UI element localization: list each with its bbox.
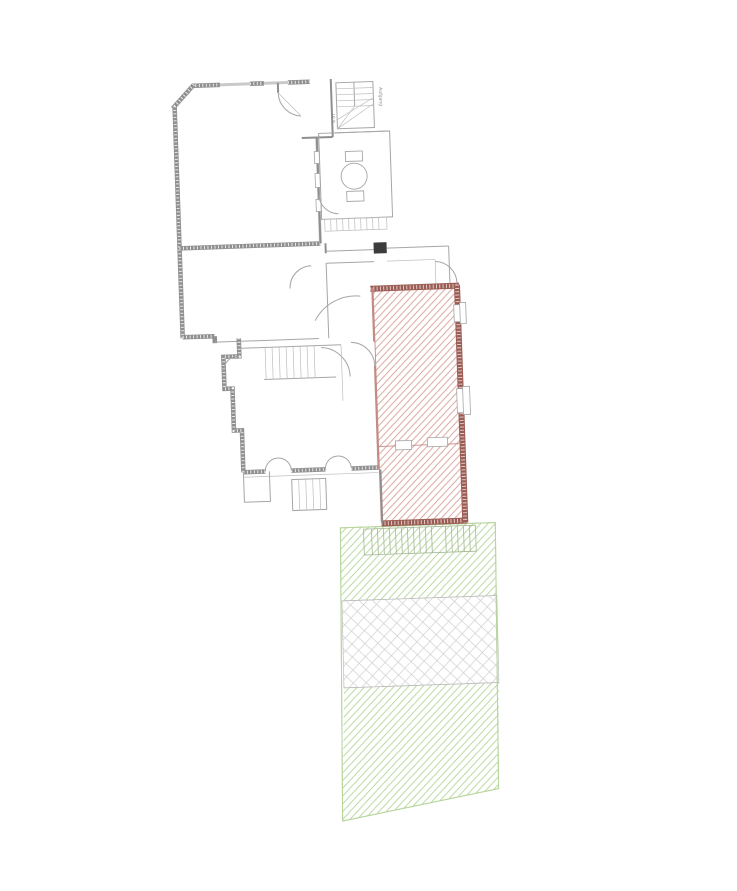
garden-band-top — [339, 523, 497, 601]
window-outer — [460, 302, 467, 323]
chair — [345, 151, 362, 162]
chair — [347, 191, 364, 202]
stair-label: Aufgang — [377, 87, 384, 106]
patio — [319, 131, 393, 231]
building-upper — [172, 79, 343, 344]
red-hatch-fill — [373, 288, 464, 522]
window-outer — [463, 386, 471, 414]
door-arc — [289, 266, 312, 289]
rooflight — [395, 440, 411, 450]
annex-outline — [243, 471, 270, 502]
building-middle — [223, 334, 380, 513]
patio-steps — [325, 217, 387, 231]
dimension-label: 4 m — [331, 114, 337, 123]
entry-stoop — [292, 478, 327, 510]
garden-area — [332, 523, 505, 822]
vestibule — [278, 79, 333, 139]
red-extension — [370, 284, 474, 525]
stair-box: 4 m Aufgang — [330, 81, 385, 129]
door-arc — [351, 342, 375, 367]
door-arc — [314, 296, 361, 321]
interior-stairs — [239, 345, 351, 405]
chimney-block — [373, 242, 386, 253]
garden-band-bottom — [338, 682, 504, 821]
rooflight — [427, 437, 447, 447]
page: 4 m Aufgang — [0, 0, 737, 891]
round-table — [341, 163, 368, 190]
terrace-crosshatch-band — [341, 595, 500, 687]
floor-plan-svg: 4 m Aufgang — [0, 0, 737, 891]
labels: 4 m Aufgang — [330, 87, 384, 123]
door-arc — [435, 261, 457, 284]
